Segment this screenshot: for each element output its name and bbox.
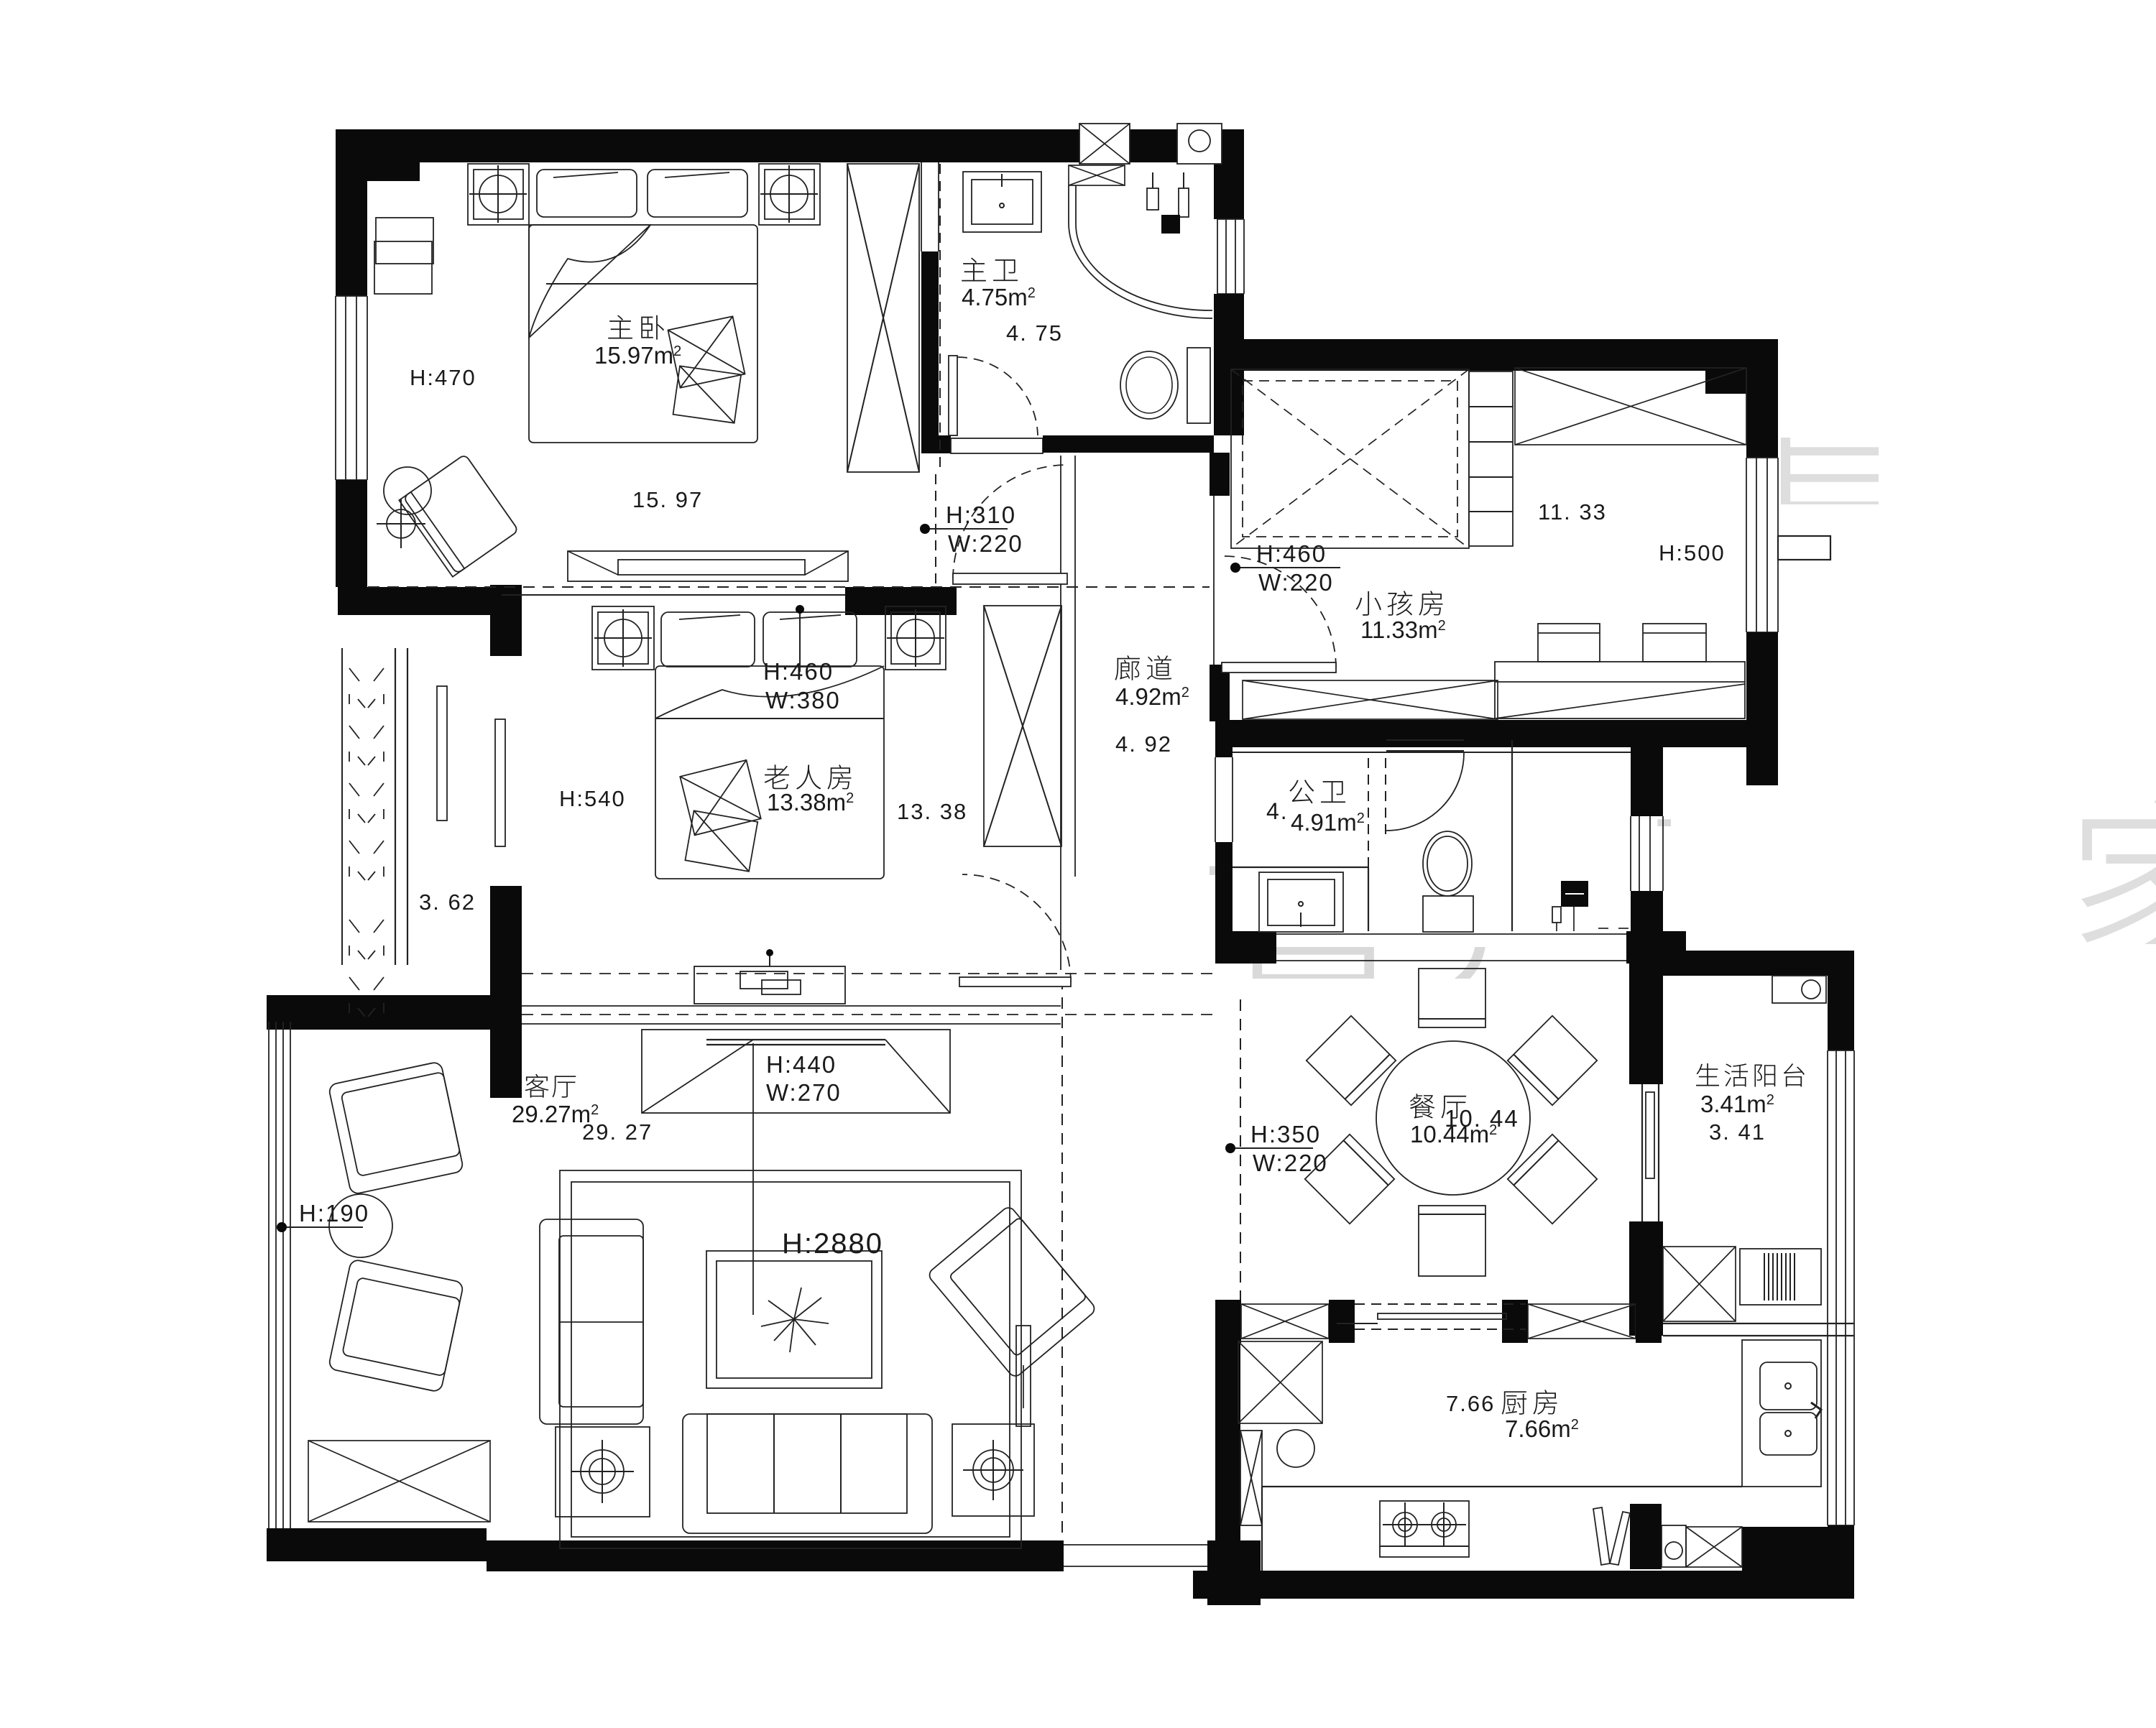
- svg-text:W:220: W:220: [1258, 569, 1334, 596]
- svg-text:3.41m2: 3.41m2: [1700, 1091, 1774, 1117]
- svg-text:13. 38: 13. 38: [897, 799, 967, 824]
- svg-text:11.33m2: 11.33m2: [1360, 616, 1446, 643]
- svg-text:H:500: H:500: [1659, 540, 1726, 565]
- svg-text:4.: 4.: [1266, 798, 1289, 824]
- svg-text:H:540: H:540: [559, 786, 626, 811]
- svg-text:4. 75: 4. 75: [1006, 320, 1063, 346]
- svg-text:W:270: W:270: [766, 1079, 842, 1106]
- svg-text:13.38m2: 13.38m2: [767, 789, 854, 816]
- svg-text:3. 62: 3. 62: [419, 890, 476, 915]
- svg-text:7.66m2: 7.66m2: [1505, 1415, 1579, 1442]
- svg-text:3. 41: 3. 41: [1709, 1119, 1766, 1145]
- svg-text:H:190: H:190: [299, 1200, 369, 1226]
- svg-text:W:380: W:380: [765, 687, 841, 713]
- svg-text:29. 27: 29. 27: [582, 1119, 653, 1145]
- svg-text:H:2880: H:2880: [782, 1228, 883, 1260]
- svg-text:W:220: W:220: [1253, 1150, 1328, 1176]
- svg-text:H:440: H:440: [766, 1051, 837, 1078]
- svg-text:10.44m2: 10.44m2: [1410, 1121, 1497, 1147]
- svg-text:15. 97: 15. 97: [632, 487, 703, 512]
- svg-text:H:460: H:460: [1256, 540, 1327, 567]
- svg-text:H:460: H:460: [763, 658, 834, 685]
- svg-text:4. 92: 4. 92: [1115, 731, 1172, 757]
- svg-text:4.91m2: 4.91m2: [1291, 809, 1365, 836]
- svg-text:7.66: 7.66: [1446, 1391, 1495, 1416]
- svg-text:4.75m2: 4.75m2: [962, 284, 1036, 310]
- svg-text:11. 33: 11. 33: [1538, 499, 1607, 525]
- svg-text:H:310: H:310: [946, 502, 1016, 528]
- svg-text:15.97m2: 15.97m2: [594, 342, 681, 369]
- svg-text:H:470: H:470: [410, 365, 476, 390]
- svg-text:W:220: W:220: [948, 530, 1023, 557]
- svg-text:4.92m2: 4.92m2: [1115, 683, 1189, 710]
- svg-text:H:350: H:350: [1250, 1121, 1321, 1147]
